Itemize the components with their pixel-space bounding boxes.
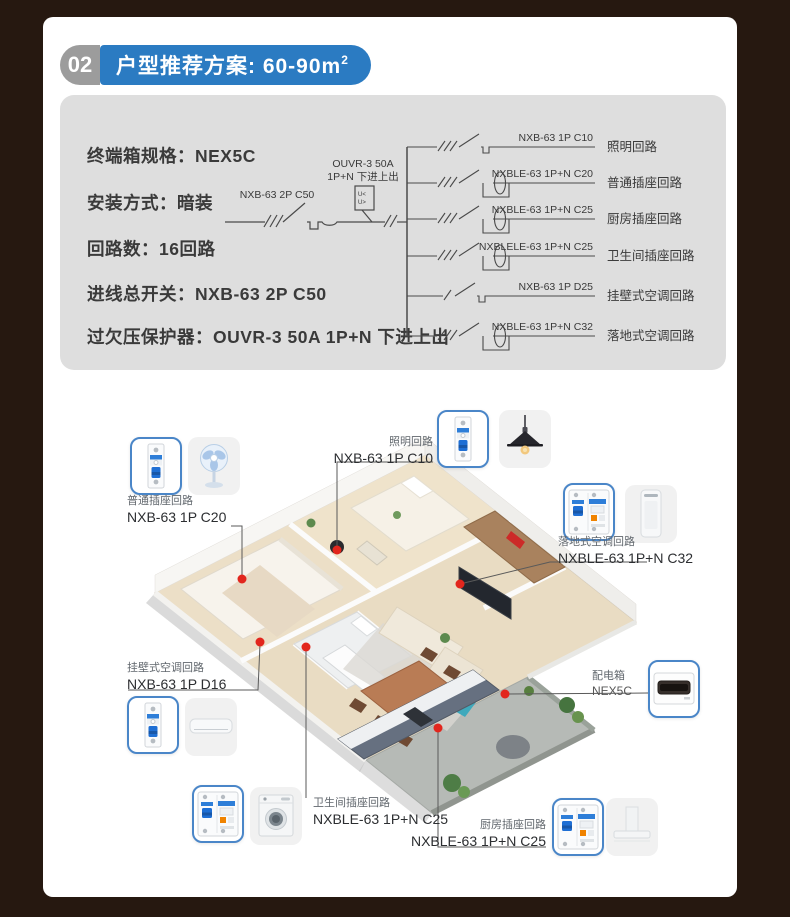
main-breaker-label: NXB-63 2P C50: [240, 189, 315, 201]
product-box-lamp: [499, 410, 551, 468]
spec-line-circuit-count: 回路数：16回路: [87, 236, 215, 261]
location-dot-wall-ac: [256, 638, 265, 647]
branch-circuit-name: 卫生间插座回路: [607, 248, 695, 263]
branch-circuit-name: 挂壁式空调回路: [607, 288, 695, 303]
range-hood-icon: [611, 805, 653, 849]
section-number-badge: 02: [60, 45, 100, 85]
callout-name: 挂壁式空调回路: [127, 662, 226, 676]
callout-model: NXB-63 1P C20: [127, 509, 226, 527]
beanbag: [496, 735, 530, 759]
branch-circuit-name: 照明回路: [607, 139, 658, 154]
product-box-fan: [188, 437, 240, 495]
branch-model-label: NXBLE-63 1P+N C25: [492, 204, 593, 216]
breaker-box-wall-ac: [127, 696, 179, 754]
location-dot-socket: [238, 575, 247, 584]
product-box-wall-ac: [185, 698, 237, 756]
floor-ac-icon: [638, 489, 664, 539]
callout-model: NEX5C: [592, 684, 632, 699]
callout-lighting: 照明回路 NXB-63 1P C10: [293, 436, 433, 467]
branch-model-label: NXBLE-63 1P+N C20: [492, 168, 593, 180]
location-dot-floor-ac: [456, 580, 465, 589]
protector-label-line2: 1P+N 下进上出: [327, 170, 398, 183]
mcb-breaker-icon: [448, 416, 478, 462]
callout-kitchen: 厨房插座回路 NXBLE-63 1P+N C25: [406, 819, 546, 850]
mcb-breaker-icon: [138, 702, 168, 748]
distribution-box-icon: [653, 672, 695, 706]
location-dot-dist-box: [501, 690, 510, 699]
callout-model: NXB-63 1P D16: [127, 676, 226, 694]
callout-socket: 普通插座回路 NXB-63 1P C20: [127, 495, 226, 526]
standing-fan-icon: [194, 442, 234, 490]
rcbo-breaker-icon: [567, 489, 611, 535]
branch-circuit-name: 落地式空调回路: [607, 328, 695, 343]
spec-line-install-type: 安装方式：暗装: [87, 190, 213, 215]
product-box-range-hood: [606, 798, 658, 856]
rcbo-breaker-icon: [556, 804, 600, 850]
dist-box-callout: [648, 660, 700, 718]
circuit-diagram: NXB-63 2P C50 OUVR-3 50A 1P+N 下进上出 U< U>: [215, 130, 730, 360]
callout-name: 普通插座回路: [127, 495, 226, 509]
section-title: 户型推荐方案: 60-90m2: [100, 45, 371, 85]
section-header: 02 户型推荐方案: 60-90m2: [60, 45, 371, 85]
callout-name: 落地式空调回路: [558, 536, 693, 550]
section-title-superscript: 2: [341, 53, 349, 67]
callout-wall-ac: 挂壁式空调回路 NXB-63 1P D16: [127, 662, 226, 693]
washing-machine-icon: [257, 794, 295, 838]
protector-label-line1: OUVR-3 50A: [332, 158, 393, 170]
page-background: { "colors": { "background": "#261810", "…: [0, 0, 790, 917]
section-title-text: 户型推荐方案: 60-90m: [116, 50, 341, 80]
branch-model-label: NXBLELE-63 1P+N C25: [479, 241, 593, 253]
location-dot-bathroom: [302, 643, 311, 652]
breaker-box-floor-ac: [563, 483, 615, 541]
callout-name: 照明回路: [293, 436, 433, 450]
protector-symbol-u-less: U<: [358, 192, 366, 198]
breaker-box-lighting: [437, 410, 489, 468]
branch-circuit-name: 厨房插座回路: [607, 211, 683, 226]
branch-circuit-name: 普通插座回路: [607, 175, 683, 190]
location-dot-lighting: [333, 546, 342, 555]
mcb-breaker-icon: [141, 443, 171, 489]
rcbo-breaker-icon: [196, 791, 240, 837]
callout-model: NXB-63 1P C10: [293, 450, 433, 468]
protector-symbol-u-more: U>: [358, 200, 366, 206]
pendant-lamp-icon: [505, 415, 545, 463]
callout-model: NXBLE-63 1P+N C32: [558, 550, 693, 568]
content-card: 02 户型推荐方案: 60-90m2 终端箱规格：NEX5C 安装方式：暗装 回…: [43, 17, 737, 897]
product-box-floor-ac: [625, 485, 677, 543]
callout-floor-ac: 落地式空调回路 NXBLE-63 1P+N C32: [558, 536, 693, 567]
branch-circuit-names: 照明回路 普通插座回路 厨房插座回路 卫生间插座回路 挂壁式空调回路 落地式空调…: [607, 139, 695, 343]
callout-name: 厨房插座回路: [406, 819, 546, 833]
callout-name: 配电箱: [592, 670, 632, 684]
breaker-box-bathroom: [192, 785, 244, 843]
branch-model-label: NXB-63 1P C10: [518, 132, 593, 144]
branch-model-label: NXB-63 1P D25: [518, 281, 593, 293]
callout-model: NXBLE-63 1P+N C25: [406, 833, 546, 851]
branch-model-label: NXBLE-63 1P+N C32: [492, 321, 593, 333]
callout-name: 卫生间插座回路: [313, 797, 448, 811]
callout-dist-box: 配电箱 NEX5C: [592, 670, 632, 699]
location-dot-kitchen: [434, 724, 443, 733]
breaker-box-kitchen: [552, 798, 604, 856]
product-box-washer: [250, 787, 302, 845]
breaker-box-socket: [130, 437, 182, 495]
wall-ac-icon: [189, 716, 233, 738]
